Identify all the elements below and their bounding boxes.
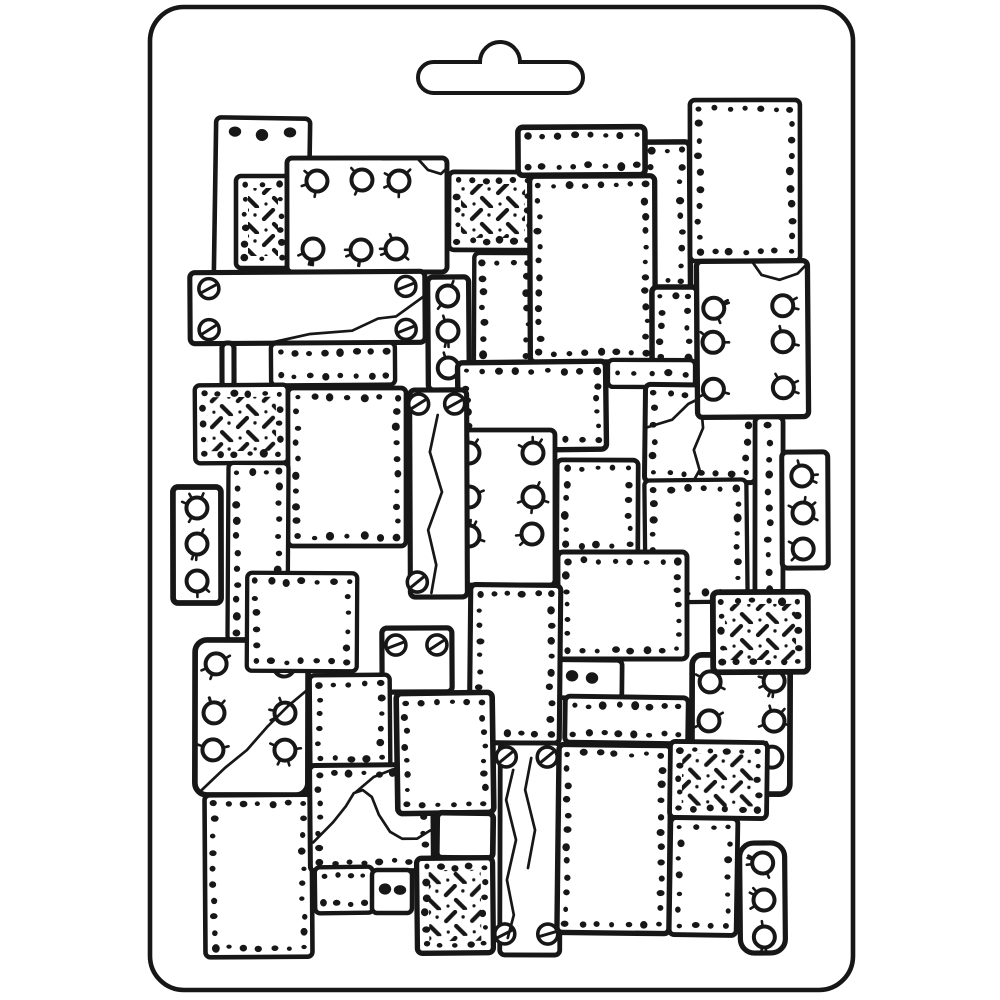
diamond-tread-texture: [248, 188, 278, 256]
diamond-tread-texture: [461, 184, 525, 238]
metal-plate-rivets-center: [530, 176, 656, 362]
metal-plate-diamond-e: [417, 858, 494, 954]
plate-body: [396, 692, 494, 813]
metal-plate-rivets-i: [247, 573, 358, 672]
diamond-tread-texture: [207, 397, 276, 452]
metal-plate-bolts-f: [782, 452, 829, 568]
plate-body: [222, 343, 234, 387]
plate-body: [288, 388, 406, 546]
metal-plate-small-b: [315, 867, 374, 914]
metal-plate-bolts-b: [696, 261, 808, 418]
rivet-blob: [394, 885, 406, 895]
metal-plate-rivets-d: [288, 388, 406, 546]
metal-plate-rivets-n: [557, 744, 671, 933]
metal-plate-diamond-c: [195, 385, 289, 464]
metal-plate-diamond-f: [669, 741, 767, 818]
metal-plate-screws-c: [495, 743, 561, 955]
screw-head: [445, 394, 465, 414]
metal-plate-bar-a: [518, 127, 645, 176]
metal-plate-connector: [222, 343, 234, 387]
screw-head: [199, 279, 219, 299]
metal-plate-rivets-g: [557, 460, 638, 554]
metal-plate-rivets-m: [396, 692, 494, 813]
metal-plate-strip-b: [755, 417, 783, 597]
metal-plate-screw-bar: [190, 271, 425, 344]
diamond-tread-texture: [682, 754, 756, 807]
plate-body: [530, 176, 656, 362]
plate-body: [204, 795, 312, 958]
plate-body: [557, 460, 638, 554]
metal-plate-rivets-top-right: [690, 100, 800, 261]
metal-plate-bolts-a: [287, 158, 447, 272]
metal-plate-rivets-k: [204, 795, 312, 958]
metal-plate-small-d: [437, 813, 494, 859]
rivet-blob: [379, 883, 391, 894]
metal-plate-rivets-square: [558, 552, 687, 659]
screw-head: [409, 394, 429, 414]
screw-head: [396, 319, 416, 339]
metal-plate-bolts-h: [740, 843, 786, 953]
metal-plate-screws-b: [382, 628, 452, 692]
plate-body: [247, 573, 358, 672]
screw-head: [427, 635, 447, 655]
plate-body: [518, 127, 645, 176]
plate-body: [271, 343, 395, 386]
metal-plate-screws-a: [407, 390, 468, 597]
plate-pattern: [173, 100, 828, 957]
plate-body: [565, 696, 689, 744]
metal-plate-diamond-a: [236, 176, 290, 268]
screw-head: [407, 572, 427, 592]
metal-plate-diamond-b: [449, 172, 537, 250]
metal-plate-bolts-d: [173, 487, 221, 603]
metal-plate-rivets-o: [669, 817, 738, 935]
product-photo: [0, 0, 1000, 1000]
plate-body: [558, 552, 687, 659]
metal-plate-small-c: [372, 870, 412, 913]
plate-body: [372, 870, 412, 913]
metal-plate-small-a: [558, 660, 622, 699]
screw-head: [386, 635, 406, 655]
plate-body: [437, 813, 494, 859]
metal-plate-bar-c: [271, 343, 395, 386]
diamond-tread-texture: [725, 604, 796, 660]
plate-body: [310, 675, 391, 768]
metal-plate-bar-d: [565, 696, 689, 744]
screw-head: [496, 747, 516, 767]
soft-mould-illustration: [0, 0, 1000, 1000]
screw-head: [199, 320, 219, 340]
screw-head: [396, 276, 416, 296]
diamond-tread-texture: [429, 870, 482, 942]
plate-body: [410, 390, 468, 597]
plate-body: [690, 100, 800, 261]
plate-body: [557, 744, 671, 933]
metal-plate-diamond-d: [713, 592, 808, 672]
plate-body: [190, 271, 425, 344]
screw-head: [537, 747, 557, 767]
metal-plate-rivets-l: [310, 675, 391, 768]
